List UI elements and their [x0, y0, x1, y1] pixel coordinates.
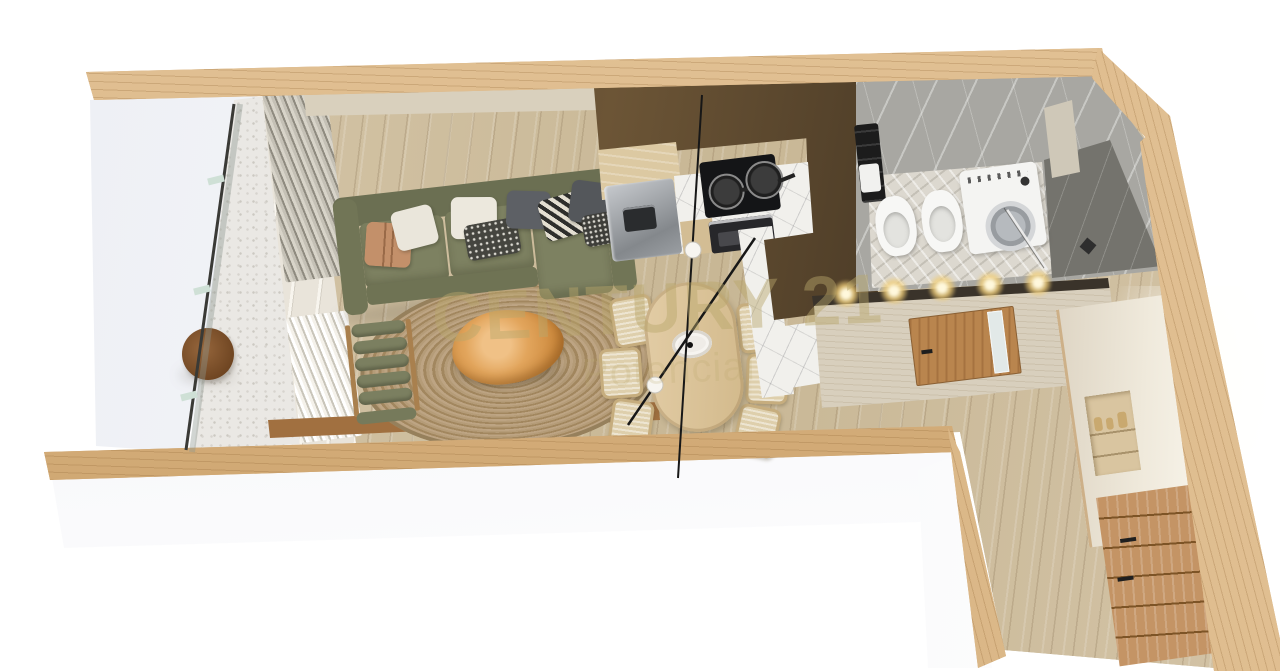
bathroom-door — [908, 306, 1021, 386]
bidet-basin — [927, 204, 958, 243]
decor-vase — [1093, 417, 1103, 432]
lounge-bolster — [354, 353, 409, 372]
wardrobe-niche — [1084, 390, 1141, 476]
lounge-bolster — [358, 387, 413, 406]
washer-control-panel — [967, 169, 1027, 183]
lounge-chair — [345, 319, 421, 427]
washing-machine — [959, 161, 1048, 255]
door-glass-strip — [987, 310, 1009, 373]
lounge-bolster — [356, 370, 411, 389]
cooktop — [699, 154, 781, 219]
fridge-water-dispenser — [622, 205, 657, 233]
dining-chair — [598, 347, 643, 400]
balcony-round-table — [182, 328, 234, 380]
decor-vase — [1106, 417, 1115, 430]
washer-knob — [1020, 176, 1030, 186]
door-handle — [921, 349, 932, 354]
decor-vase — [1117, 411, 1128, 428]
toilet-seat — [881, 210, 912, 249]
ceiling-spotlight — [831, 279, 861, 309]
ceiling-spotlight — [879, 276, 909, 306]
drawer-handle — [1120, 537, 1136, 543]
ceiling-spotlight — [1023, 268, 1053, 298]
refrigerator — [604, 178, 683, 262]
drawer-handle — [1117, 576, 1133, 582]
ceiling-spotlight — [927, 273, 957, 303]
floorplan-render: CENTURY 21 Potencial — [0, 0, 1280, 671]
towel — [859, 163, 882, 193]
ceiling-spotlight — [975, 270, 1005, 300]
pan — [707, 172, 747, 212]
lounge-bolster — [353, 336, 408, 355]
